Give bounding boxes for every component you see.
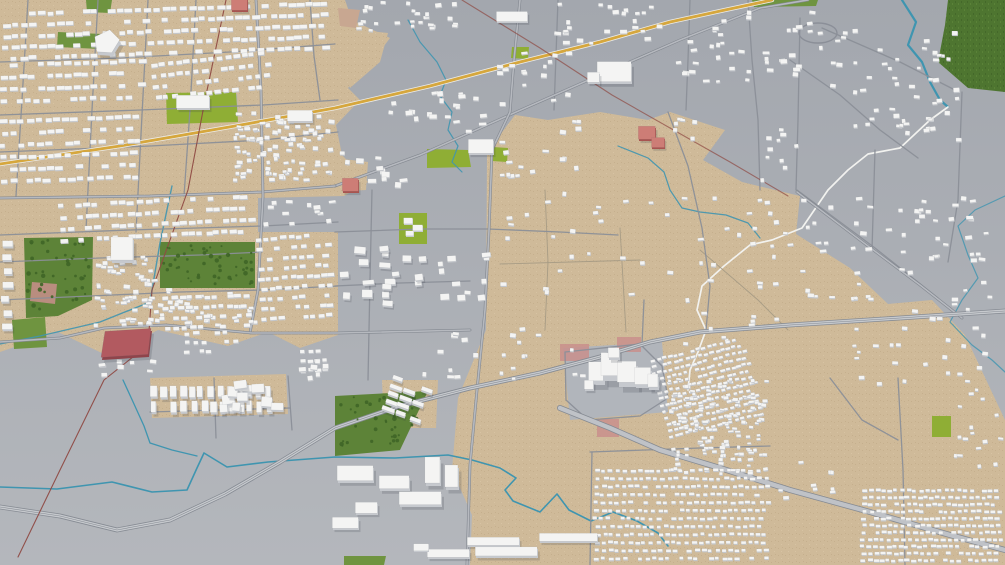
building	[565, 92, 571, 97]
building	[248, 218, 256, 222]
building	[683, 342, 688, 346]
building	[328, 147, 334, 152]
building	[300, 359, 305, 363]
building	[869, 117, 874, 120]
building	[819, 46, 823, 50]
building	[477, 294, 485, 301]
building	[723, 558, 728, 561]
building	[379, 246, 388, 252]
building	[709, 557, 714, 560]
building	[55, 73, 62, 77]
building	[595, 548, 599, 551]
building	[749, 426, 754, 429]
building	[704, 485, 708, 488]
building	[191, 17, 199, 21]
building	[926, 531, 931, 534]
building	[728, 509, 732, 512]
building	[299, 264, 305, 268]
building	[888, 67, 892, 71]
building	[404, 218, 413, 224]
building	[133, 290, 138, 294]
building	[882, 525, 887, 528]
building	[731, 502, 736, 505]
building	[33, 99, 39, 103]
building	[475, 547, 537, 556]
building	[320, 12, 328, 16]
building	[234, 165, 240, 169]
building	[689, 70, 696, 74]
building	[676, 542, 680, 545]
building	[232, 87, 239, 92]
building	[145, 211, 151, 215]
building	[70, 117, 78, 121]
warehouse-bottom-5	[414, 544, 429, 552]
building	[73, 43, 80, 47]
building	[322, 162, 328, 166]
building	[747, 442, 751, 444]
building	[9, 63, 17, 67]
building	[746, 212, 752, 215]
building	[107, 266, 113, 268]
building	[340, 271, 349, 277]
building	[919, 214, 925, 218]
building	[268, 205, 274, 208]
building	[37, 142, 45, 146]
building	[779, 128, 784, 131]
building	[42, 178, 50, 182]
building	[77, 215, 83, 219]
building	[184, 322, 190, 325]
building	[300, 25, 307, 29]
building	[673, 467, 677, 470]
building	[756, 533, 761, 536]
building	[96, 263, 102, 267]
building	[147, 369, 153, 372]
building	[641, 541, 645, 544]
building	[208, 57, 214, 62]
building	[62, 117, 70, 121]
building	[711, 263, 716, 267]
building	[732, 427, 737, 430]
building	[226, 16, 234, 20]
building	[399, 178, 407, 182]
building	[206, 207, 213, 211]
building	[154, 198, 160, 202]
building	[554, 31, 561, 35]
west-park-south	[12, 317, 47, 349]
building	[868, 558, 873, 561]
building	[159, 317, 164, 320]
building	[628, 293, 634, 296]
building	[47, 154, 53, 158]
building	[308, 350, 313, 354]
building	[193, 69, 198, 74]
building	[780, 59, 787, 64]
building	[979, 532, 983, 535]
building	[256, 85, 262, 90]
building	[248, 52, 253, 57]
building	[234, 294, 241, 298]
building	[65, 141, 74, 145]
building	[374, 22, 378, 25]
building	[437, 350, 443, 354]
building	[147, 41, 154, 45]
building	[894, 524, 898, 527]
building	[976, 252, 981, 255]
building	[552, 53, 558, 57]
building	[601, 557, 605, 560]
building	[87, 116, 95, 120]
building	[171, 296, 178, 300]
building	[38, 11, 46, 15]
building	[700, 518, 705, 521]
school-building-3	[406, 231, 414, 237]
building	[558, 269, 563, 272]
building	[751, 501, 755, 504]
building	[615, 484, 619, 487]
building	[144, 8, 152, 12]
building	[694, 419, 699, 423]
building	[300, 167, 304, 171]
building	[284, 125, 289, 129]
ballfields-west	[30, 282, 57, 304]
building	[789, 53, 796, 57]
building	[234, 146, 239, 149]
building	[724, 440, 729, 443]
building	[621, 541, 625, 544]
building	[981, 559, 986, 562]
building	[410, 20, 415, 23]
building	[91, 9, 97, 13]
building	[379, 262, 390, 268]
building	[874, 538, 879, 541]
building	[766, 136, 772, 140]
building	[830, 84, 836, 88]
building	[129, 163, 136, 167]
building	[119, 84, 126, 88]
building	[608, 509, 612, 512]
building	[614, 502, 619, 505]
building	[315, 164, 321, 167]
building	[521, 354, 525, 358]
building	[229, 229, 237, 233]
building	[86, 214, 93, 218]
building	[406, 1, 411, 5]
building	[635, 549, 639, 552]
building	[101, 164, 108, 168]
building	[604, 533, 608, 536]
building	[288, 142, 293, 146]
building	[119, 319, 126, 323]
building	[220, 314, 227, 318]
building	[598, 219, 603, 222]
building	[927, 552, 931, 555]
building	[503, 150, 509, 155]
building	[362, 290, 373, 298]
building	[594, 558, 599, 561]
building	[127, 223, 134, 227]
building	[56, 10, 64, 14]
building	[224, 340, 229, 344]
building	[673, 477, 678, 480]
building	[144, 51, 152, 55]
building	[322, 45, 330, 49]
building	[48, 12, 54, 16]
building	[102, 214, 109, 218]
building	[724, 493, 728, 496]
building	[902, 326, 908, 330]
building	[984, 502, 989, 505]
building	[751, 517, 755, 520]
building	[664, 510, 668, 513]
building	[405, 110, 413, 115]
building	[318, 284, 325, 288]
building	[266, 171, 270, 175]
building	[908, 538, 912, 541]
city-3d-map-render	[0, 0, 1005, 565]
building	[965, 504, 969, 507]
building	[638, 493, 643, 496]
industrial-7	[332, 517, 360, 532]
building	[452, 2, 457, 6]
building	[517, 341, 521, 344]
building	[750, 379, 754, 383]
building	[649, 525, 654, 528]
building	[943, 243, 949, 246]
building	[180, 401, 187, 412]
building	[163, 7, 171, 11]
building	[853, 61, 857, 64]
building	[624, 534, 629, 537]
building	[692, 120, 697, 124]
building	[701, 501, 706, 504]
building	[223, 38, 230, 42]
building	[292, 25, 300, 29]
building	[286, 200, 293, 203]
building	[635, 542, 640, 545]
industrial-4	[425, 457, 444, 490]
building	[891, 560, 895, 563]
building	[519, 327, 525, 331]
building	[499, 371, 503, 375]
building	[597, 62, 631, 82]
building	[941, 496, 945, 499]
building	[925, 489, 929, 492]
building	[512, 377, 516, 380]
building	[118, 59, 126, 63]
building	[614, 541, 618, 544]
building	[220, 324, 226, 328]
building	[173, 327, 179, 331]
building	[117, 8, 124, 12]
building	[97, 285, 101, 289]
building	[865, 247, 872, 251]
building	[139, 59, 147, 63]
building	[60, 216, 67, 220]
building	[151, 63, 158, 68]
building	[355, 502, 377, 513]
building	[733, 485, 737, 488]
building	[723, 396, 729, 400]
building	[750, 242, 756, 246]
building	[180, 6, 187, 10]
building	[289, 133, 295, 137]
building	[658, 557, 663, 560]
building	[658, 549, 663, 552]
building	[952, 31, 958, 35]
building	[646, 558, 651, 561]
building	[298, 13, 304, 17]
building	[256, 238, 262, 242]
building	[180, 221, 187, 225]
building	[643, 526, 647, 529]
building	[665, 533, 670, 536]
building	[670, 525, 674, 528]
building	[200, 58, 207, 63]
building	[100, 299, 105, 302]
building	[981, 281, 987, 285]
building	[0, 144, 5, 148]
building	[608, 486, 613, 489]
building	[161, 73, 167, 78]
building	[569, 254, 574, 258]
building	[682, 72, 688, 76]
building	[289, 222, 294, 226]
building	[119, 224, 126, 228]
building	[685, 298, 689, 303]
building	[935, 237, 940, 241]
building	[64, 153, 70, 157]
building	[602, 509, 608, 512]
building	[755, 509, 760, 512]
building	[19, 155, 27, 159]
building	[952, 297, 959, 301]
building	[686, 509, 690, 512]
red-building-east-b	[652, 138, 667, 151]
building	[314, 274, 320, 278]
building	[267, 257, 273, 261]
building	[643, 549, 648, 552]
building	[756, 438, 760, 441]
building	[192, 59, 198, 64]
building	[917, 546, 922, 549]
building	[100, 84, 106, 88]
building	[368, 29, 373, 32]
building	[854, 357, 859, 360]
building	[979, 552, 984, 555]
building	[246, 313, 252, 317]
building	[968, 392, 973, 395]
building	[721, 450, 725, 453]
building	[123, 114, 131, 118]
building	[959, 552, 964, 555]
building	[961, 344, 966, 348]
building	[221, 66, 228, 71]
building	[608, 540, 613, 543]
building	[780, 133, 786, 137]
park-southeast	[932, 416, 951, 437]
building	[750, 406, 755, 410]
building	[877, 382, 882, 386]
building	[880, 538, 884, 541]
building	[640, 261, 645, 265]
building	[26, 178, 33, 182]
building	[78, 238, 84, 242]
building	[807, 293, 814, 297]
building	[995, 545, 999, 548]
building	[915, 538, 919, 541]
building	[893, 488, 897, 491]
building	[132, 175, 138, 179]
building	[47, 44, 55, 48]
building	[677, 423, 681, 425]
building	[608, 348, 619, 358]
building	[252, 128, 257, 131]
building	[321, 273, 328, 277]
building	[188, 231, 195, 235]
building	[213, 49, 221, 53]
building	[836, 62, 843, 67]
building	[716, 410, 720, 413]
building	[111, 237, 133, 260]
building	[250, 137, 255, 140]
building	[273, 277, 279, 281]
warehouse-bottom-4	[427, 549, 471, 561]
building	[438, 261, 443, 266]
building	[751, 392, 755, 395]
building	[985, 531, 990, 534]
building	[55, 166, 63, 170]
building	[638, 126, 655, 139]
building	[170, 210, 178, 214]
building	[607, 5, 612, 9]
building	[892, 361, 898, 364]
building	[144, 233, 150, 237]
building	[969, 496, 974, 499]
building	[136, 223, 142, 227]
building	[800, 270, 805, 273]
building	[677, 526, 682, 529]
building	[445, 115, 451, 118]
building	[653, 494, 657, 497]
building	[18, 143, 24, 147]
building	[644, 37, 651, 41]
building	[952, 303, 958, 306]
building	[901, 250, 906, 253]
building	[59, 178, 66, 182]
building	[206, 350, 212, 354]
building	[860, 231, 867, 236]
building	[728, 549, 733, 552]
building	[447, 16, 452, 20]
building	[764, 556, 769, 559]
building	[140, 255, 145, 258]
building	[223, 219, 229, 223]
building	[111, 270, 116, 274]
building	[757, 549, 762, 552]
building	[271, 201, 276, 205]
building	[391, 101, 396, 106]
building	[746, 15, 752, 19]
building	[946, 551, 951, 554]
building	[259, 267, 265, 271]
building	[765, 477, 769, 480]
building	[227, 27, 233, 31]
building	[67, 177, 76, 181]
building	[413, 225, 423, 231]
building	[820, 249, 827, 252]
building	[117, 365, 124, 370]
